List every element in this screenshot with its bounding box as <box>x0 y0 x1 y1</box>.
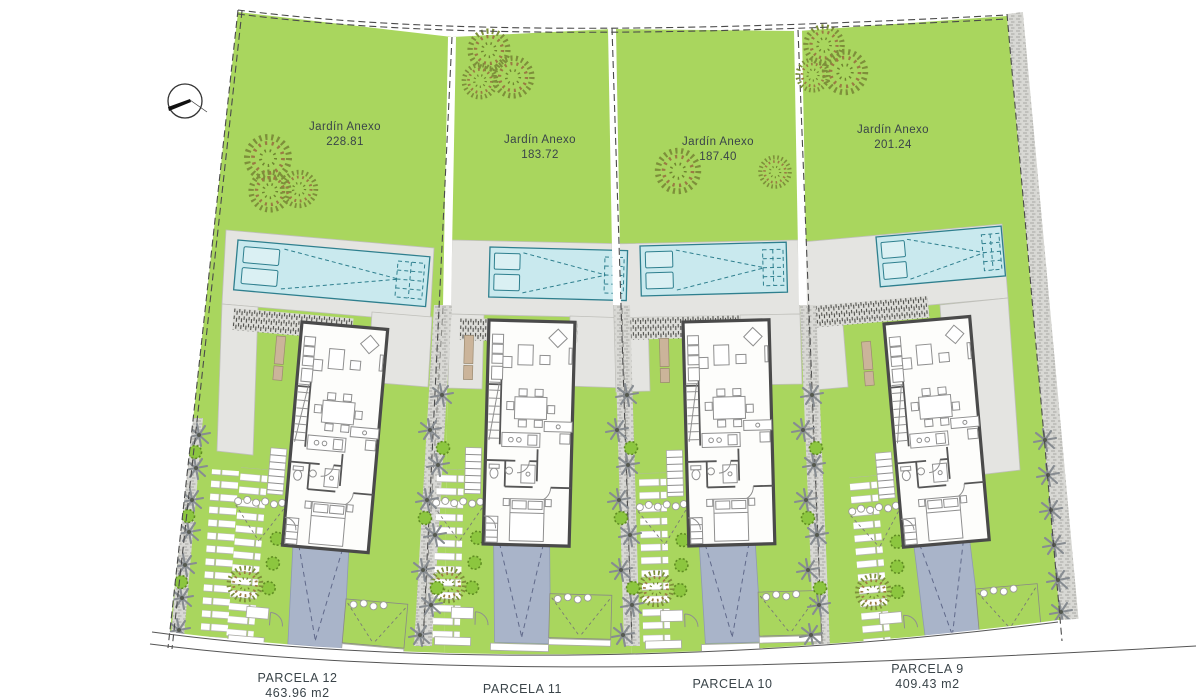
garden-area: 183.72 <box>465 148 615 163</box>
pool-parcela-9 <box>876 226 1005 287</box>
garden-label-parcela-12: Jardín Anexo 228.81 <box>270 120 420 150</box>
garden-name: Jardín Anexo <box>270 120 420 135</box>
parcel-label-9: PARCELA 9 409.43 m2 <box>855 662 1000 692</box>
garden-name: Jardín Anexo <box>465 133 615 148</box>
garden-area: 187.40 <box>643 150 793 165</box>
parcel-area: 409.43 m2 <box>855 677 1000 692</box>
parcel-name: PARCELA 9 <box>855 662 1000 677</box>
parcel-area: 463.96 m2 <box>225 686 370 698</box>
garden-label-parcela-10: Jardín Anexo 187.40 <box>643 135 793 165</box>
garden-name: Jardín Anexo <box>818 123 968 138</box>
garden-label-parcela-11: Jardín Anexo 183.72 <box>465 133 615 163</box>
site-plan-drawing <box>0 0 1200 698</box>
parcel-label-12: PARCELA 12 463.96 m2 <box>225 671 370 698</box>
pool-parcela-10 <box>640 242 787 296</box>
site-plan-page: Jardín Anexo 228.81 Jardín Anexo 183.72 … <box>0 0 1200 698</box>
parcel-label-10: PARCELA 10 <box>660 677 805 692</box>
garden-name: Jardín Anexo <box>643 135 793 150</box>
garden-area: 201.24 <box>818 138 968 153</box>
parcel-label-11: PARCELA 11 <box>450 682 595 697</box>
garden-label-parcela-9: Jardín Anexo 201.24 <box>818 123 968 153</box>
garden-area: 228.81 <box>270 135 420 150</box>
pool-parcela-11 <box>489 247 628 301</box>
parcel-name: PARCELA 12 <box>225 671 370 686</box>
parcel-name: PARCELA 11 <box>450 682 595 697</box>
parcel-name: PARCELA 10 <box>660 677 805 692</box>
